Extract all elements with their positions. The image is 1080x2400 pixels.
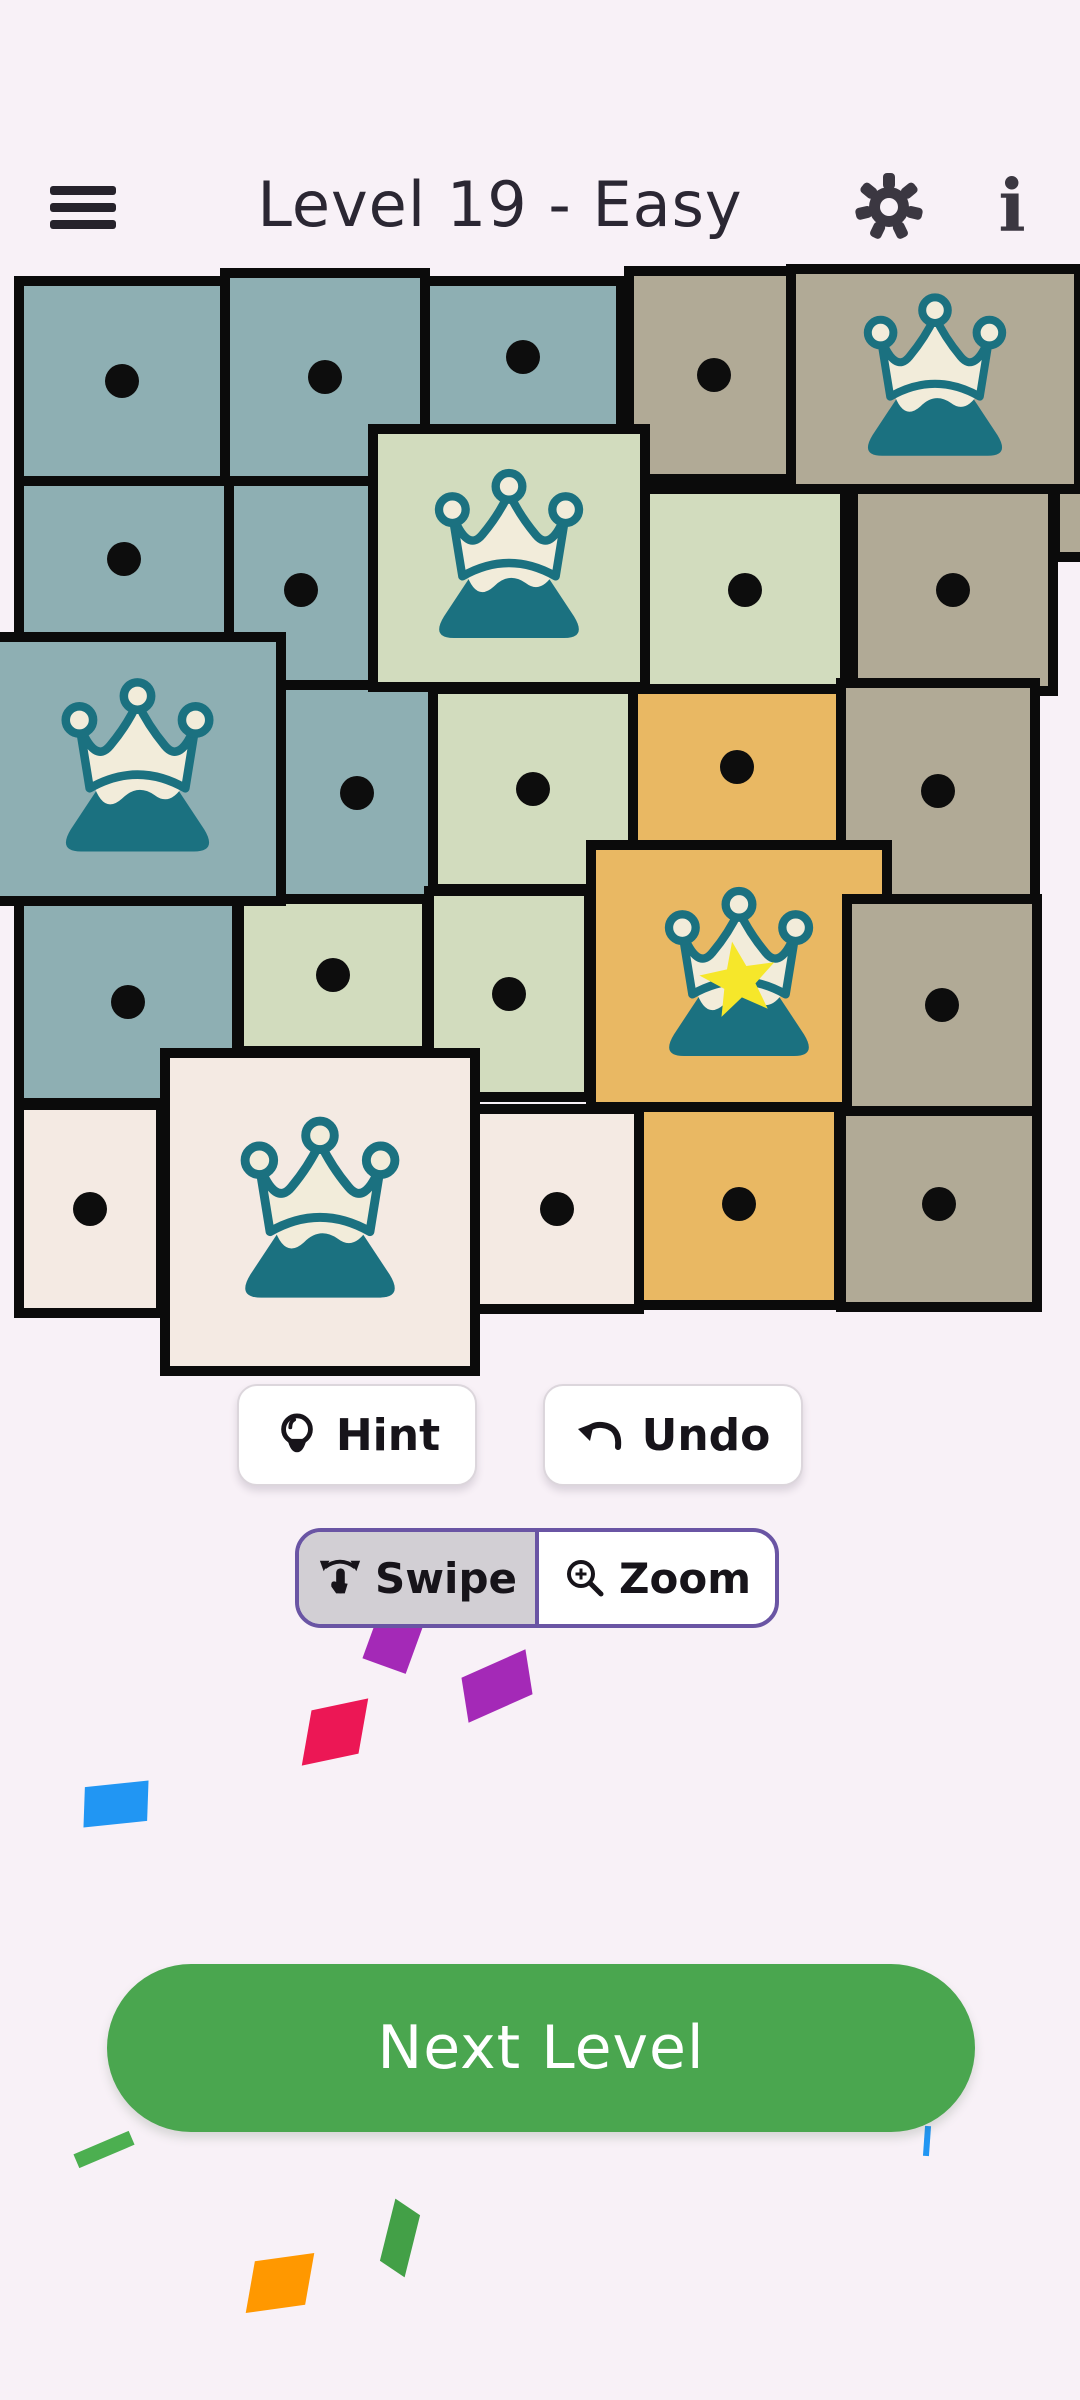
swipe-mode-button[interactable]: Swipe <box>299 1532 539 1624</box>
empty-mark-dot <box>284 573 318 607</box>
undo-arrow-icon <box>576 1415 626 1455</box>
crown-icon <box>409 458 609 658</box>
empty-mark-dot <box>720 750 754 784</box>
empty-mark-dot <box>722 1187 756 1221</box>
empty-mark-dot <box>728 573 762 607</box>
magnifier-plus-icon <box>563 1556 607 1600</box>
cell-r2c1[interactable] <box>14 476 234 642</box>
hint-button[interactable]: Hint <box>237 1384 477 1486</box>
zoom-mode-button[interactable]: Zoom <box>539 1532 775 1624</box>
mode-toggle: Swipe Zoom <box>295 1528 779 1628</box>
empty-mark-dot <box>506 340 540 374</box>
empty-mark-dot <box>922 1187 956 1221</box>
crown-icon <box>213 1105 427 1319</box>
empty-mark-dot <box>936 573 970 607</box>
empty-mark-dot <box>105 364 139 398</box>
cell-r2c4[interactable] <box>640 484 850 696</box>
confetti-blue-1 <box>83 1780 148 1827</box>
empty-mark-dot <box>316 958 350 992</box>
empty-mark-dot <box>111 985 145 1019</box>
cell-r5c5[interactable] <box>836 1096 1042 1312</box>
undo-button[interactable]: Undo <box>543 1384 803 1486</box>
confetti-orange <box>246 2253 315 2313</box>
cell-r4c2[interactable] <box>234 894 432 1056</box>
empty-mark-dot <box>492 977 526 1011</box>
empty-mark-dot <box>516 772 550 806</box>
cell-r5c2[interactable] <box>160 1048 480 1376</box>
confetti-crimson <box>302 1698 368 1765</box>
empty-mark-dot <box>308 360 342 394</box>
cell-r3c4[interactable] <box>628 684 846 850</box>
cell-r5c4[interactable] <box>634 1098 844 1310</box>
confetti-purple-2 <box>461 1649 532 1722</box>
cell-r3c1[interactable] <box>0 632 286 906</box>
crown-icon <box>839 283 1031 475</box>
cell-r1c3[interactable] <box>420 276 626 438</box>
empty-mark-dot <box>540 1192 574 1226</box>
cell-r5c1[interactable] <box>14 1100 166 1318</box>
undo-label: Undo <box>642 1410 771 1461</box>
empty-mark-dot <box>921 774 955 808</box>
puzzle-board <box>0 0 1080 1400</box>
empty-mark-dot <box>73 1192 107 1226</box>
cell-r5c3[interactable] <box>470 1104 644 1314</box>
next-level-button[interactable]: Next Level <box>107 1964 975 2132</box>
cell-r2c3[interactable] <box>368 424 650 692</box>
hint-label: Hint <box>336 1410 440 1461</box>
cell-r1c4[interactable] <box>624 266 804 484</box>
empty-mark-dot <box>107 542 141 576</box>
cell-r1c1[interactable] <box>14 276 230 486</box>
crown-star-icon <box>639 876 839 1076</box>
cell-r4c5[interactable] <box>842 894 1042 1116</box>
empty-mark-dot <box>697 358 731 392</box>
crown-icon <box>35 667 240 872</box>
confetti-blue-2 <box>923 2126 931 2156</box>
cell-r2c5[interactable] <box>848 484 1058 696</box>
lightbulb-icon <box>274 1409 320 1461</box>
swipe-label: Swipe <box>375 1554 517 1603</box>
confetti-green-1 <box>73 2131 134 2168</box>
empty-mark-dot <box>925 988 959 1022</box>
zoom-label: Zoom <box>619 1554 751 1603</box>
confetti-green-2 <box>380 2199 420 2278</box>
cell-r3c2[interactable] <box>276 680 438 906</box>
next-level-label: Next Level <box>377 2013 704 2083</box>
cell-r1c5[interactable] <box>786 264 1080 494</box>
empty-mark-dot <box>340 776 374 810</box>
swipe-hand-icon <box>317 1555 363 1601</box>
